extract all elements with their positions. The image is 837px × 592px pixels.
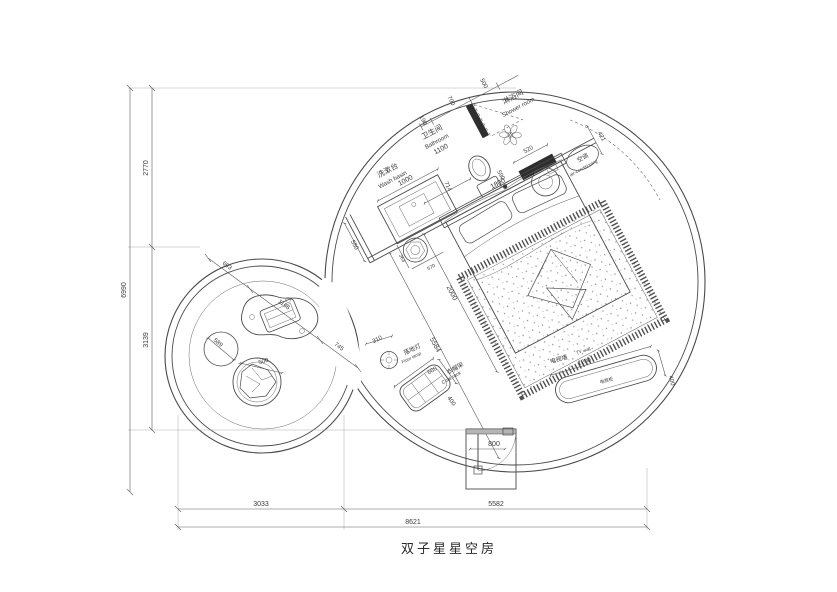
passage-opening <box>310 274 371 394</box>
dim-ac-depth: 421 <box>596 131 606 143</box>
dim-left-total: 6990 <box>121 282 128 298</box>
dim-shower: 500 <box>478 78 488 90</box>
dim-left-lower: 3139 <box>143 332 150 348</box>
toilet <box>464 152 502 198</box>
bottom-dim-lines <box>175 415 650 530</box>
dim-lounge-chair: 500 <box>258 357 270 366</box>
dim-coat-depth: 400 <box>445 396 456 408</box>
dim-bed-length: 2000 <box>445 285 459 302</box>
shower-drain-icon <box>496 120 526 150</box>
dim-stool-a: 363 <box>397 253 406 263</box>
dim-wall-stub: 190 <box>417 115 427 127</box>
floor-plan-canvas: 洗漱台 Wash basin 1000 卫生间 Bathroom 1100 淋浴… <box>0 0 837 592</box>
entry-vestibule: 800 <box>466 428 516 489</box>
coat-rack <box>394 356 456 414</box>
dim-counter-depth: 550 <box>349 239 359 251</box>
dim-bottom-right: 5582 <box>488 501 504 508</box>
dim-bottom-total: 8621 <box>405 519 421 526</box>
tv-cabinet-label: 电视柜 <box>599 375 614 386</box>
dim-stool-b: 570 <box>426 263 436 272</box>
rotated-room-block: 洗漱台 Wash basin 1000 卫生间 Bathroom 1100 淋浴… <box>310 41 714 473</box>
dim-lamp: 310 <box>372 335 384 345</box>
round-rug <box>204 332 238 366</box>
dim-room-diag: 5584 <box>428 337 442 354</box>
floor-lamp-icon <box>381 352 398 369</box>
dim-left-upper: 2770 <box>143 160 150 176</box>
dim-bath-door: 700 <box>446 95 456 107</box>
drawing-title: 双子星星空房 <box>401 541 497 556</box>
lounge-chair <box>233 358 282 406</box>
dim-round-a: 693 <box>221 261 233 272</box>
floor-plan-page: 洗漱台 Wash basin 1000 卫生间 Bathroom 1100 淋浴… <box>0 0 837 592</box>
dim-door-width: 800 <box>488 441 500 448</box>
dim-ac-len: 520 <box>523 145 535 155</box>
dim-bottom-left: 3033 <box>253 501 269 508</box>
rug <box>459 202 665 396</box>
dim-round-rug: 589 <box>212 338 224 349</box>
